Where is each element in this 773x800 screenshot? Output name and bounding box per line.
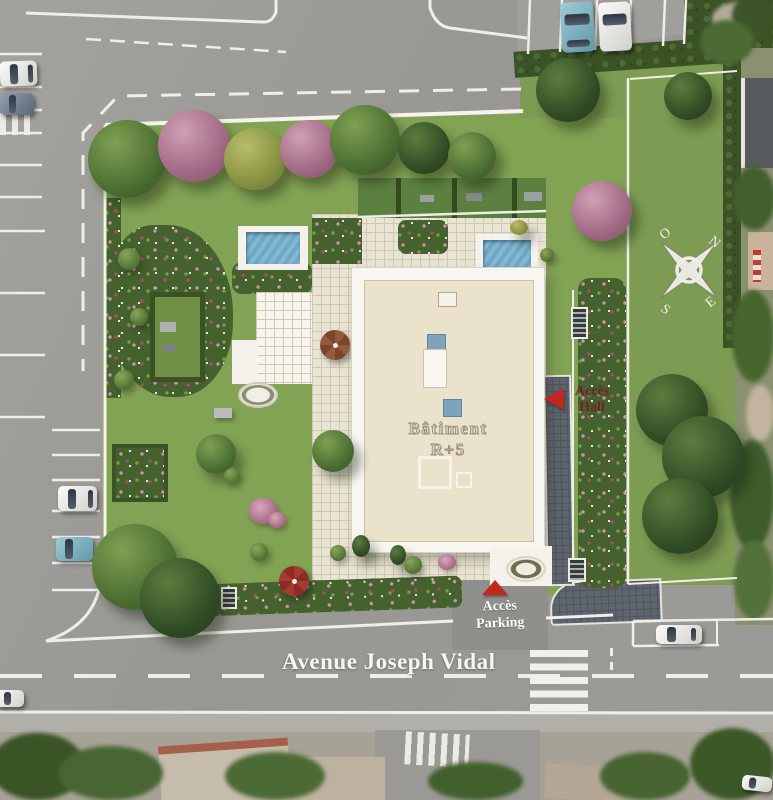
pool <box>246 232 300 264</box>
flower-bed <box>105 198 121 398</box>
bush <box>118 248 140 270</box>
flower-bush <box>438 554 456 570</box>
conifer <box>352 535 370 557</box>
tree <box>398 122 450 174</box>
bush <box>404 556 422 574</box>
garden-furniture <box>420 195 434 202</box>
crosswalk <box>0 113 34 135</box>
car-rear-window <box>567 39 590 47</box>
car-windshield <box>564 13 590 25</box>
garden-hedge-divider <box>452 178 457 218</box>
ventilation-grille <box>568 558 586 582</box>
skylight <box>443 399 462 417</box>
roof-hatch <box>438 292 457 307</box>
bush <box>224 468 240 484</box>
garden-furniture <box>163 344 175 352</box>
compass-rose-icon: O N S E <box>646 218 732 322</box>
tree <box>733 166 773 230</box>
car-windshield <box>667 627 676 641</box>
car-windshield <box>9 64 18 84</box>
car-windshield <box>68 489 77 509</box>
tree <box>140 558 220 638</box>
tree <box>572 181 632 241</box>
car <box>0 60 37 86</box>
car-rear-window <box>28 64 34 82</box>
lane-divider-dashed <box>610 648 613 678</box>
access-parking-label: Accès Parking <box>451 596 548 633</box>
car <box>656 625 702 644</box>
car <box>56 537 93 561</box>
tree <box>312 430 354 472</box>
parasol <box>320 330 350 360</box>
terrace <box>256 292 312 384</box>
private-garden <box>150 292 205 382</box>
access-hall-label: Accès Hall <box>566 384 618 416</box>
flower-bed <box>398 220 448 254</box>
roof-hatch <box>456 472 472 488</box>
shrub <box>510 220 528 235</box>
car-windshield <box>65 539 73 558</box>
tree <box>700 20 754 64</box>
avenue-name-label: Avenue Joseph Vidal <box>282 649 496 675</box>
roof-structure <box>423 349 447 388</box>
building-label-line2: R+5 <box>386 439 510 460</box>
garden-hedge-divider <box>396 178 401 218</box>
access-parking-arrow-icon <box>482 580 508 595</box>
parasol-pole <box>333 343 338 348</box>
flower-bed <box>312 218 362 264</box>
crosswalk <box>530 650 588 712</box>
car <box>0 93 34 115</box>
tree <box>280 120 338 178</box>
car-windshield <box>4 692 10 705</box>
ventilation-grille <box>221 587 237 609</box>
neighbour-building-roof <box>745 78 773 168</box>
car-rear-window <box>88 490 93 508</box>
bush <box>330 545 346 561</box>
car <box>0 690 24 707</box>
car <box>560 1 596 53</box>
tree <box>732 290 773 382</box>
car <box>58 486 97 511</box>
garden-furniture <box>524 192 542 201</box>
tree <box>58 746 163 800</box>
car-windshield <box>9 95 16 113</box>
bush <box>130 308 148 326</box>
ventilation-grille <box>571 307 588 339</box>
tree <box>88 120 166 198</box>
tree <box>448 132 496 180</box>
garden-furniture <box>466 193 482 201</box>
neighbour-yard <box>746 385 773 441</box>
roof-hatch <box>418 456 452 489</box>
car-windshield <box>749 777 757 789</box>
garden-furniture <box>214 408 232 418</box>
access-hall-word2: Hall <box>566 400 618 416</box>
pool <box>483 240 531 267</box>
tree <box>428 762 523 800</box>
garden-furniture <box>160 322 176 332</box>
bush <box>114 370 134 390</box>
tree <box>664 72 712 120</box>
compass-east-label: E <box>703 294 719 311</box>
access-parking-word2: Parking <box>452 613 549 633</box>
tree <box>330 105 400 175</box>
parasol <box>279 566 309 596</box>
car-rear-window <box>691 628 697 641</box>
striped-chimney <box>753 250 761 282</box>
bush <box>540 248 554 262</box>
spa-basin <box>238 382 278 408</box>
tree <box>734 540 773 620</box>
parasol-pole <box>292 579 297 584</box>
compass-west-label: O <box>657 225 674 243</box>
flower-bed <box>112 444 168 502</box>
ornamental-basin <box>506 556 546 582</box>
car <box>741 774 772 792</box>
car-windshield <box>602 13 627 25</box>
garden-hedge-divider <box>512 178 517 218</box>
building-label-line1: Bâtiment <box>386 418 510 439</box>
tree <box>600 752 690 800</box>
flower-bush <box>268 512 286 528</box>
tree <box>642 478 718 554</box>
bush <box>250 543 268 561</box>
tree <box>225 752 325 800</box>
tree <box>158 110 230 182</box>
compass-south-label: S <box>657 302 673 319</box>
access-hall-arrow-icon <box>544 388 564 410</box>
sidewalk <box>0 712 773 732</box>
access-hall-word1: Accès <box>566 384 618 400</box>
car <box>598 1 633 52</box>
terrace <box>232 340 258 384</box>
building-label: Bâtiment R+5 <box>386 418 510 460</box>
tree <box>536 58 600 122</box>
tree <box>224 128 286 190</box>
site-plan: Avenue Joseph Vidal Bâtime <box>0 0 773 800</box>
